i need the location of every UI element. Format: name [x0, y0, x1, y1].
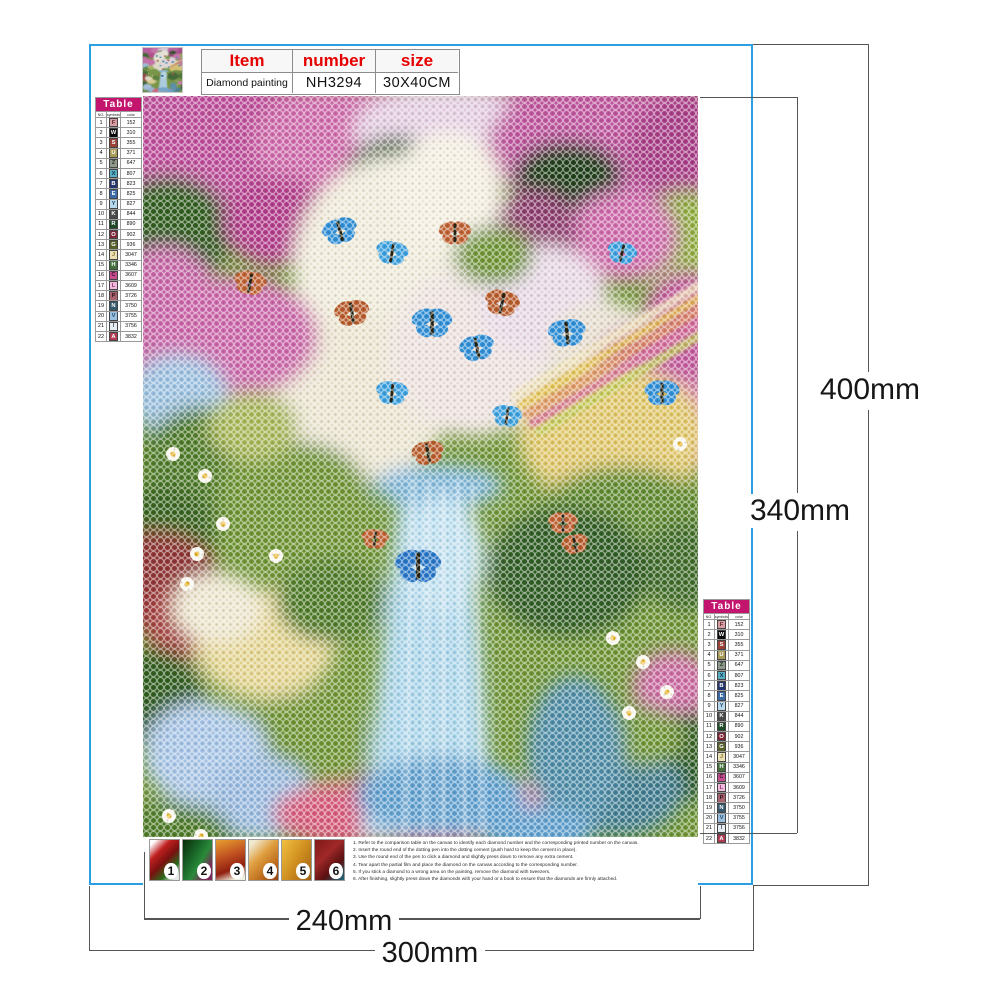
row-number: 15 [704, 762, 715, 772]
symbol-chip: C [715, 772, 729, 782]
color-table-title: Table [704, 600, 749, 613]
dmc-code: 844 [121, 209, 141, 219]
dim-label-inner-height: 340mm [745, 494, 855, 528]
color-table-row: 8E825 [96, 188, 141, 198]
dmc-code: 825 [121, 188, 141, 198]
symbol-chip: J [715, 751, 729, 761]
dim-340-tick-top [700, 97, 797, 98]
dmc-code: 3832 [729, 833, 749, 843]
dmc-code: 844 [729, 711, 749, 721]
dmc-code: 936 [729, 741, 749, 751]
dim-340-tick-bottom [700, 833, 797, 834]
spec-header-number: number [293, 50, 376, 73]
row-number: 18 [96, 290, 107, 300]
color-table-row: 12O902 [704, 731, 749, 741]
row-number: 8 [704, 690, 715, 700]
symbol-chip: I [715, 823, 729, 833]
color-table-row: 11R890 [96, 219, 141, 229]
dmc-code: 3755 [121, 311, 141, 321]
symbol-chip: K [715, 711, 729, 721]
row-number: 19 [704, 802, 715, 812]
color-table-row: 15H3346 [704, 762, 749, 772]
symbol-chip: G [107, 239, 121, 249]
color-table-row: 13G936 [96, 239, 141, 249]
color-table-row: 2W310 [96, 127, 141, 137]
color-table-row: 12O902 [96, 229, 141, 239]
step-number-badge: 1 [164, 863, 178, 879]
dmc-code: 152 [121, 117, 141, 127]
color-table-row: 20V3755 [96, 311, 141, 321]
color-table-row: 1F152 [704, 619, 749, 629]
row-number: 21 [704, 823, 715, 833]
color-table-row: 18P3726 [96, 290, 141, 300]
row-number: 3 [96, 137, 107, 147]
dmc-code: 3047 [729, 751, 749, 761]
dim-240-riser-left [144, 852, 145, 919]
symbol-chip: C [107, 270, 121, 280]
symbol-chip: U [715, 650, 729, 660]
symbol-chip: L [715, 782, 729, 792]
step-image: 2 [182, 839, 213, 881]
row-number: 4 [96, 148, 107, 158]
dim-400-tick-top [753, 44, 868, 45]
product-sheet: Item number size Diamond painting NH3294… [0, 0, 1001, 1001]
color-table-row: 5Z647 [704, 660, 749, 670]
dmc-code: 355 [121, 137, 141, 147]
symbol-chip: B [107, 178, 121, 188]
instruction-line: 4. Tear apart the partial film and place… [353, 862, 695, 869]
dmc-code: 3346 [729, 762, 749, 772]
instruction-line: 2. Insert the round end of the dotting p… [353, 847, 695, 854]
color-table-row: 16C3607 [96, 270, 141, 280]
row-number: 19 [96, 300, 107, 310]
row-number: 7 [704, 680, 715, 690]
symbol-chip: W [107, 127, 121, 137]
instruction-line: 1. Refer to the comparison table on the … [353, 840, 695, 847]
dim-300-riser-left [89, 886, 90, 951]
step-image: 3 [215, 839, 246, 881]
symbol-chip: O [107, 229, 121, 239]
dmc-code: 3346 [121, 260, 141, 270]
row-number: 11 [704, 721, 715, 731]
dim-label-outer-width: 300mm [375, 937, 485, 970]
step-image: 1 [149, 839, 180, 881]
dmc-code: 3607 [729, 772, 749, 782]
symbol-chip: I [107, 321, 121, 331]
dmc-code: 827 [729, 701, 749, 711]
symbol-chip: R [107, 219, 121, 229]
symbol-chip: P [715, 792, 729, 802]
color-table-row: 2W310 [704, 629, 749, 639]
dmc-code: 902 [729, 731, 749, 741]
dmc-code: 3607 [121, 270, 141, 280]
dim-label-inner-width: 240mm [289, 905, 399, 938]
color-table-row: 10K844 [96, 209, 141, 219]
row-number: 6 [96, 168, 107, 178]
row-number: 18 [704, 792, 715, 802]
row-number: 1 [96, 117, 107, 127]
spec-value-number: NH3294 [293, 73, 376, 93]
color-table-row: 17L3609 [704, 782, 749, 792]
color-table-row: 6X807 [96, 168, 141, 178]
color-table-row: 20V3755 [704, 813, 749, 823]
color-table-row: 9Y827 [96, 199, 141, 209]
row-number: 10 [96, 209, 107, 219]
color-table-left: TableNO.symbolscolor1F1522W3103S3554U371… [95, 97, 142, 342]
spec-header-size: size [376, 50, 458, 73]
color-table-row: 13G936 [704, 741, 749, 751]
row-number: 14 [96, 249, 107, 259]
dim-400-tick-bottom [753, 885, 868, 886]
color-table-row: 4U371 [704, 650, 749, 660]
diamond-painting-image [143, 96, 698, 837]
row-number: 12 [704, 731, 715, 741]
step-image: 4 [248, 839, 279, 881]
dmc-code: 825 [729, 690, 749, 700]
spec-table: Item number size Diamond painting NH3294… [201, 49, 460, 95]
instruction-line: 3. Use the round end of the pen to click… [353, 854, 695, 861]
dmc-code: 310 [121, 127, 141, 137]
symbol-chip: A [715, 833, 729, 843]
row-number: 13 [96, 239, 107, 249]
step-number-badge: 5 [296, 863, 310, 879]
symbol-chip: A [107, 331, 121, 341]
symbol-chip: X [715, 670, 729, 680]
instruction-line: 6. After finishing, slightly press down … [353, 876, 695, 883]
row-number: 17 [96, 280, 107, 290]
dmc-code: 152 [729, 619, 749, 629]
step-image: 6 [314, 839, 345, 881]
step-number-badge: 4 [263, 863, 277, 879]
dim-340-line-upper [797, 97, 798, 493]
row-number: 10 [704, 711, 715, 721]
dmc-code: 3609 [729, 782, 749, 792]
row-number: 1 [704, 619, 715, 629]
row-number: 8 [96, 188, 107, 198]
spec-header-item: Item [202, 50, 293, 73]
row-number: 9 [704, 701, 715, 711]
color-table-row: 22A3832 [704, 833, 749, 843]
row-number: 12 [96, 229, 107, 239]
color-table-row: 21I3756 [96, 321, 141, 331]
color-table-row: 1F152 [96, 117, 141, 127]
row-number: 9 [96, 199, 107, 209]
dmc-code: 371 [121, 148, 141, 158]
dmc-code: 310 [729, 629, 749, 639]
symbol-chip: R [715, 721, 729, 731]
dmc-code: 823 [121, 178, 141, 188]
row-number: 22 [96, 331, 107, 341]
color-table-row: 3S355 [704, 639, 749, 649]
dmc-code: 827 [121, 199, 141, 209]
diamond-painting-canvas: 123456 1. Refer to the comparison table … [143, 96, 698, 885]
dmc-code: 3756 [729, 823, 749, 833]
dim-400-line-upper [868, 44, 869, 372]
dim-240-line-left [144, 918, 292, 920]
step-image: 5 [281, 839, 312, 881]
dmc-code: 807 [729, 670, 749, 680]
dmc-code: 890 [121, 219, 141, 229]
row-number: 17 [704, 782, 715, 792]
color-table-row: 15H3346 [96, 260, 141, 270]
dmc-code: 807 [121, 168, 141, 178]
dmc-code: 3047 [121, 249, 141, 259]
symbol-chip: S [107, 137, 121, 147]
color-table-row: 3S355 [96, 137, 141, 147]
color-table-row: 8E825 [704, 690, 749, 700]
color-table-row: 22A3832 [96, 331, 141, 341]
color-table-right: TableNO.symbolscolor1F1522W3103S3554U371… [703, 599, 750, 844]
color-table-title: Table [96, 98, 141, 111]
dim-400-line-lower [868, 410, 869, 886]
symbol-chip: E [715, 690, 729, 700]
symbol-chip: Z [715, 660, 729, 670]
symbol-chip: G [715, 741, 729, 751]
product-thumbnail [143, 48, 182, 92]
dmc-code: 3750 [121, 300, 141, 310]
color-table-row: 18P3726 [704, 792, 749, 802]
color-table-row: 17L3609 [96, 280, 141, 290]
color-table-row: 10K844 [704, 711, 749, 721]
dim-300-riser-right [753, 886, 754, 951]
symbol-chip: H [715, 762, 729, 772]
symbol-chip: F [715, 619, 729, 629]
row-number: 16 [96, 270, 107, 280]
dim-240-line-right [396, 918, 700, 920]
instruction-text: 1. Refer to the comparison table on the … [353, 840, 695, 883]
dim-340-line-lower [797, 531, 798, 833]
row-number: 6 [704, 670, 715, 680]
row-number: 21 [96, 321, 107, 331]
symbol-chip: Y [107, 199, 121, 209]
dmc-code: 371 [729, 650, 749, 660]
symbol-chip: S [715, 639, 729, 649]
step-images: 123456 [149, 839, 345, 881]
color-table-row: 16C3607 [704, 772, 749, 782]
dmc-code: 3832 [121, 331, 141, 341]
symbol-chip: P [107, 290, 121, 300]
dmc-code: 936 [121, 239, 141, 249]
row-number: 2 [704, 629, 715, 639]
instruction-line: 5. If you stick a diamond to a wrong are… [353, 869, 695, 876]
color-table-row: 19N3750 [96, 300, 141, 310]
instruction-strip: 123456 1. Refer to the comparison table … [143, 837, 698, 885]
step-number-badge: 3 [230, 863, 244, 879]
row-number: 20 [96, 311, 107, 321]
dmc-code: 355 [729, 639, 749, 649]
symbol-chip: V [107, 311, 121, 321]
row-number: 4 [704, 650, 715, 660]
color-table-row: 4U371 [96, 148, 141, 158]
dim-300-line-right [480, 950, 754, 951]
row-number: 20 [704, 813, 715, 823]
symbol-chip: W [715, 629, 729, 639]
dmc-code: 647 [729, 660, 749, 670]
dmc-code: 3755 [729, 813, 749, 823]
dmc-code: 647 [121, 158, 141, 168]
step-number-badge: 2 [197, 863, 211, 879]
symbol-chip: J [107, 249, 121, 259]
row-number: 13 [704, 741, 715, 751]
row-number: 5 [96, 158, 107, 168]
dim-240-riser-right [700, 886, 701, 919]
dim-label-outer-height: 400mm [815, 373, 925, 407]
symbol-chip: N [107, 300, 121, 310]
dmc-code: 3756 [121, 321, 141, 331]
step-number-badge: 6 [329, 863, 343, 879]
row-number: 11 [96, 219, 107, 229]
dmc-code: 3750 [729, 802, 749, 812]
dmc-code: 3609 [121, 280, 141, 290]
symbol-chip: U [107, 148, 121, 158]
color-table-row: 5Z647 [96, 158, 141, 168]
color-table-row: 14J3047 [96, 249, 141, 259]
color-table-row: 6X807 [704, 670, 749, 680]
row-number: 3 [704, 639, 715, 649]
symbol-chip: K [107, 209, 121, 219]
dmc-code: 890 [729, 721, 749, 731]
row-number: 16 [704, 772, 715, 782]
symbol-chip: X [107, 168, 121, 178]
row-number: 15 [96, 260, 107, 270]
dmc-code: 823 [729, 680, 749, 690]
dmc-code: 902 [121, 229, 141, 239]
symbol-chip: F [107, 117, 121, 127]
spec-value-item: Diamond painting [202, 73, 293, 93]
symbol-chip: V [715, 813, 729, 823]
row-number: 22 [704, 833, 715, 843]
symbol-chip: Y [715, 701, 729, 711]
symbol-chip: N [715, 802, 729, 812]
symbol-chip: B [715, 680, 729, 690]
row-number: 7 [96, 178, 107, 188]
symbol-chip: H [107, 260, 121, 270]
symbol-chip: O [715, 731, 729, 741]
color-table-row: 7B823 [704, 680, 749, 690]
color-table-row: 7B823 [96, 178, 141, 188]
color-table-row: 11R890 [704, 721, 749, 731]
symbol-chip: E [107, 188, 121, 198]
color-table-row: 9Y827 [704, 701, 749, 711]
thumbnail-painting-image [143, 48, 182, 92]
spec-value-size: 30X40CM [376, 73, 458, 93]
dmc-code: 3726 [121, 290, 141, 300]
row-number: 5 [704, 660, 715, 670]
symbol-chip: Z [107, 158, 121, 168]
symbol-chip: L [107, 280, 121, 290]
color-table-row: 14J3047 [704, 751, 749, 761]
dim-300-line-left [89, 950, 380, 951]
row-number: 14 [704, 751, 715, 761]
color-table-row: 19N3750 [704, 802, 749, 812]
color-table-row: 21I3756 [704, 823, 749, 833]
row-number: 2 [96, 127, 107, 137]
dmc-code: 3726 [729, 792, 749, 802]
